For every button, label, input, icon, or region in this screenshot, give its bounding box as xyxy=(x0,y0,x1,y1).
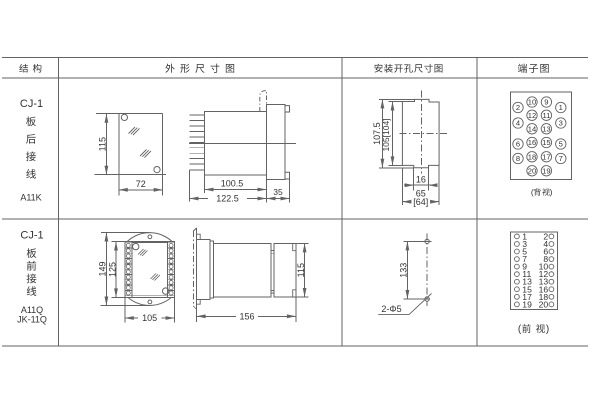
svg-text:8: 8 xyxy=(516,154,520,163)
svg-text:133: 133 xyxy=(399,263,409,278)
svg-text:7: 7 xyxy=(559,154,563,163)
svg-text:122.5: 122.5 xyxy=(216,194,239,204)
svg-text:115: 115 xyxy=(296,263,306,277)
svg-text:18: 18 xyxy=(528,153,536,162)
svg-text:(: ( xyxy=(531,187,534,197)
svg-text:17: 17 xyxy=(542,153,550,162)
svg-text:20: 20 xyxy=(528,167,536,176)
svg-text:CJ-1: CJ-1 xyxy=(20,98,43,110)
svg-text:100.5: 100.5 xyxy=(221,179,244,189)
svg-text:[64]: [64] xyxy=(413,197,428,207)
svg-text:35: 35 xyxy=(273,187,283,197)
svg-text:10: 10 xyxy=(528,98,536,107)
svg-text:3: 3 xyxy=(559,119,563,128)
svg-text:2-Φ5: 2-Φ5 xyxy=(381,304,401,314)
svg-text:11: 11 xyxy=(542,111,550,120)
svg-text:4: 4 xyxy=(516,119,520,128)
svg-text:19: 19 xyxy=(542,167,550,176)
svg-text:16: 16 xyxy=(416,174,426,184)
svg-text:5: 5 xyxy=(559,140,563,149)
svg-text:9: 9 xyxy=(544,98,548,107)
svg-text:20: 20 xyxy=(539,299,549,309)
svg-text:12: 12 xyxy=(528,111,536,120)
svg-text:115: 115 xyxy=(98,137,108,151)
svg-text:16: 16 xyxy=(528,138,536,147)
svg-text:): ) xyxy=(546,324,549,335)
svg-text:72: 72 xyxy=(136,179,146,189)
svg-text:): ) xyxy=(550,187,553,197)
svg-text:14: 14 xyxy=(528,125,536,134)
svg-text:105[104]: 105[104] xyxy=(381,118,391,151)
svg-text:19: 19 xyxy=(522,299,532,309)
svg-text:A11Q: A11Q xyxy=(21,305,43,315)
svg-text:13: 13 xyxy=(542,125,550,134)
svg-text:1: 1 xyxy=(559,103,563,112)
svg-text:125: 125 xyxy=(107,262,117,277)
svg-text:A11K: A11K xyxy=(20,193,41,203)
svg-text:149: 149 xyxy=(98,261,108,276)
svg-text:6: 6 xyxy=(516,140,520,149)
svg-text:JK-11Q: JK-11Q xyxy=(17,315,47,325)
svg-text:2: 2 xyxy=(516,103,520,112)
svg-text:156: 156 xyxy=(239,311,254,321)
svg-text:CJ-1: CJ-1 xyxy=(20,230,43,242)
svg-text:105: 105 xyxy=(142,313,157,323)
svg-text:15: 15 xyxy=(542,138,550,147)
